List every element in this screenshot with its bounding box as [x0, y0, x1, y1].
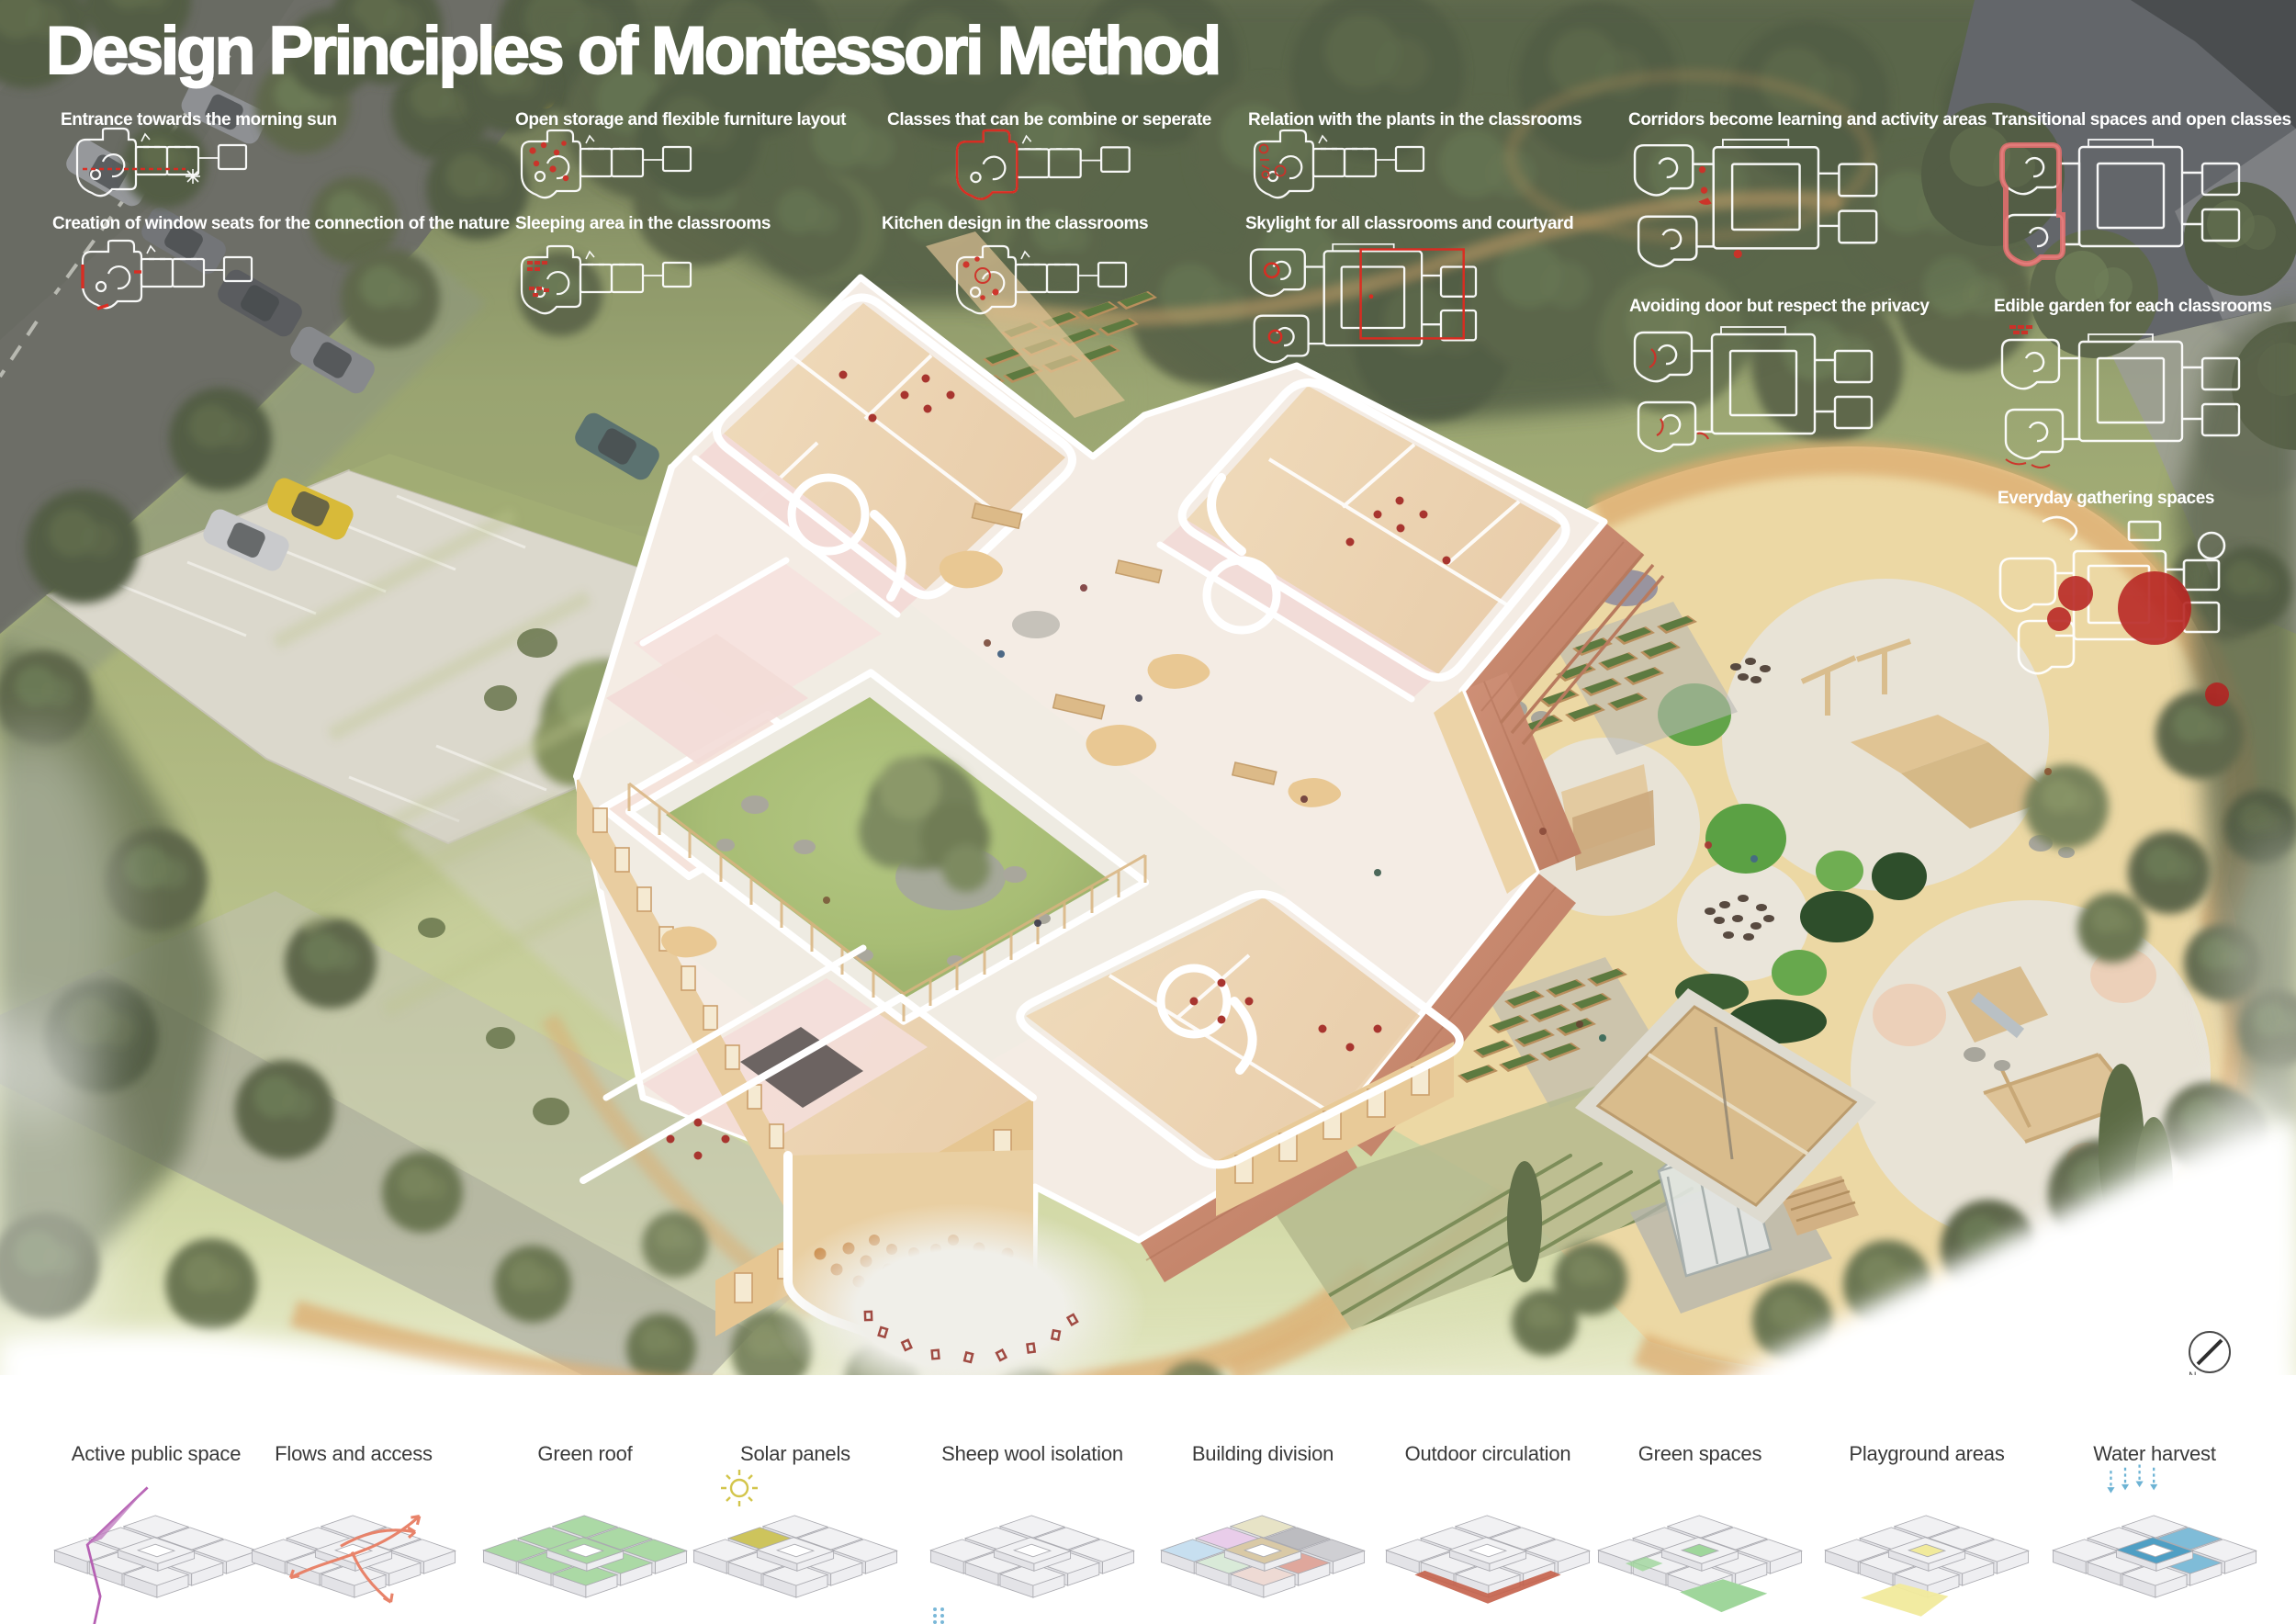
svg-text:Sleeping area in the classroom: Sleeping area in the classrooms [515, 214, 771, 233]
svg-text:Skylight for all classrooms an: Skylight for all classrooms and courtyar… [1245, 214, 1573, 233]
svg-text:Flows and access: Flows and access [275, 1442, 433, 1465]
svg-text:Active public space: Active public space [72, 1442, 242, 1465]
svg-text:Green roof: Green roof [537, 1442, 633, 1465]
svg-text:Avoiding door but respect the: Avoiding door but respect the privacy [1629, 297, 1930, 316]
svg-text:Solar panels: Solar panels [740, 1442, 850, 1465]
svg-text:Corridors become learning and: Corridors become learning and activity a… [1628, 110, 1986, 130]
svg-text:Green spaces: Green spaces [1638, 1442, 1762, 1465]
svg-text:Building division: Building division [1192, 1442, 1334, 1465]
svg-text:Relation with the plants in th: Relation with the plants in the classroo… [1248, 110, 1581, 130]
svg-text:Kitchen design in the classroo: Kitchen design in the classrooms [882, 214, 1148, 233]
svg-text:Entrance towards the morning s: Entrance towards the morning sun [61, 110, 337, 130]
svg-text:Outdoor circulation: Outdoor circulation [1405, 1442, 1571, 1465]
svg-text:Everyday gathering spaces: Everyday gathering spaces [1998, 489, 2214, 508]
svg-text:Design Principles of Montessor: Design Principles of Montessori Method [46, 14, 1219, 88]
svg-text:Sheep wool isolation: Sheep wool isolation [941, 1442, 1123, 1465]
svg-text:Classes that can be combine or: Classes that can be combine or seperate [887, 110, 1211, 130]
svg-text:Transitional spaces and open c: Transitional spaces and open classes [1992, 110, 2291, 130]
svg-text:Playground areas: Playground areas [1849, 1442, 2004, 1465]
svg-text:Creation of window seats for t: Creation of window seats for the connect… [52, 214, 510, 233]
svg-text:Water harvest: Water harvest [2093, 1442, 2216, 1465]
svg-text:Edible garden for each classro: Edible garden for each classrooms [1994, 297, 2272, 316]
svg-text:Open storage and flexible furn: Open storage and flexible furniture layo… [515, 110, 847, 130]
